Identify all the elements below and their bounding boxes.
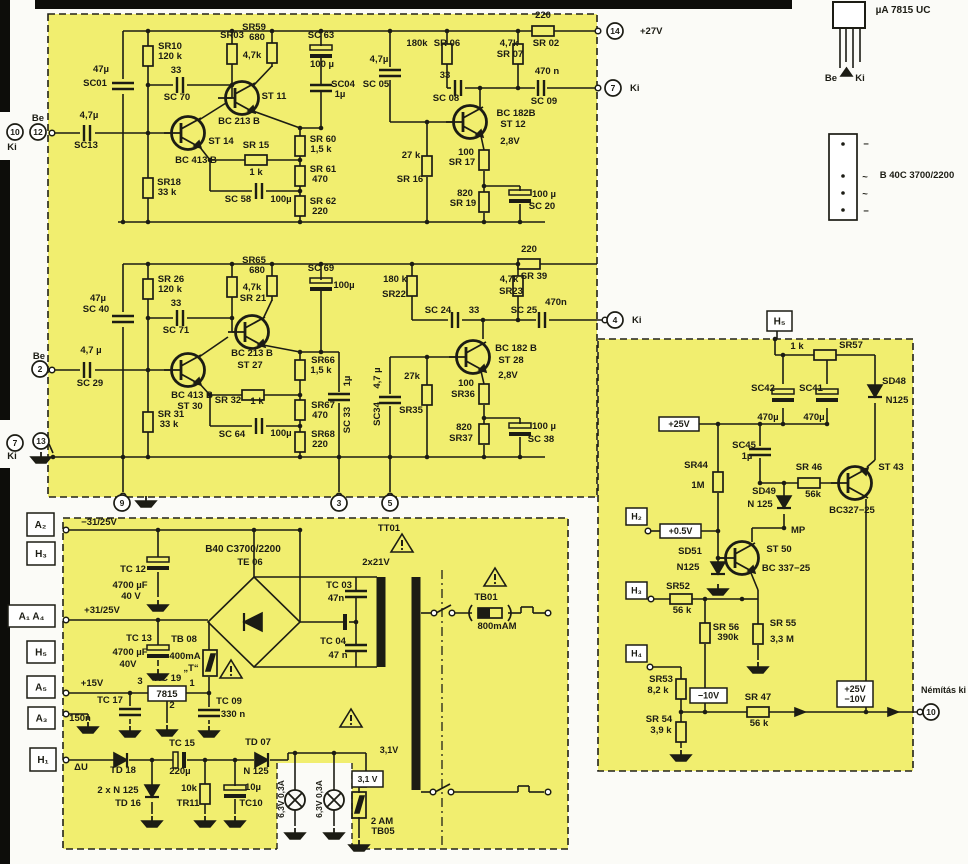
component-label: 100 µ [532, 421, 556, 432]
junction-dot [716, 556, 721, 561]
junction-dot [703, 710, 708, 715]
junction-dot [825, 422, 830, 427]
component-label: SC 70 [164, 92, 190, 103]
terminal-7: 7 [7, 435, 23, 451]
junction-dot [298, 126, 303, 131]
component-label: SC 08 [433, 93, 459, 104]
resistor-sr55 [753, 624, 763, 644]
junction-dot [121, 220, 126, 225]
junction-dot [146, 220, 151, 225]
component-label: 220 [312, 206, 328, 217]
resistor-sr67 [295, 400, 305, 420]
resistor-tr11 [200, 784, 210, 804]
component-label: SR57 [839, 340, 863, 351]
component-label: SR22 [382, 289, 406, 300]
component-label: SC 64 [219, 429, 246, 440]
component-label: N 125 [747, 499, 773, 510]
terminal-number: 13 [36, 436, 46, 446]
component-label: 4,7k [500, 274, 519, 285]
open-terminal-dot [430, 789, 436, 795]
component-label: ST 12 [500, 119, 525, 130]
junction-dot [230, 83, 235, 88]
junction-dot [146, 262, 151, 267]
component-label: SC45 [732, 440, 756, 451]
component-label: SC42 [751, 383, 775, 394]
resistor-sr02 [532, 26, 554, 36]
junction-dot [146, 83, 151, 88]
junction-dot [230, 262, 235, 267]
component-label: Be [32, 113, 44, 124]
resistor-sr26 [143, 279, 153, 299]
b40c-package [829, 134, 857, 220]
resistor-sr15 [245, 155, 267, 165]
component-label: „T“ [183, 663, 199, 674]
box-label: A₁ A₄ [19, 612, 45, 623]
component-label: SC 69 [308, 263, 334, 274]
box-label: −10V [844, 694, 865, 704]
component-label: BC 413 B [175, 155, 217, 166]
label-box: A₃ [28, 707, 55, 729]
resistor-sr56 [700, 623, 710, 643]
resistor-sr10 [143, 46, 153, 66]
component-label: ST 14 [208, 136, 234, 147]
label-box: H₁ [30, 748, 56, 771]
resistor-sr53 [676, 679, 686, 699]
resistor-sr57 [814, 350, 836, 360]
component-label: ST 43 [878, 462, 903, 473]
component-label: 390k [717, 632, 739, 643]
cap-sc69 [310, 287, 332, 291]
component-label: 10k [181, 783, 198, 794]
b40c-package [841, 174, 845, 178]
resistor-sr31 [143, 412, 153, 432]
component-label: SR 47 [745, 692, 771, 703]
component-label: 4,7µ [80, 110, 99, 121]
component-label: 4700 µF [112, 647, 147, 658]
component-label: 100 [458, 378, 474, 389]
component-label: 1,5 k [310, 144, 332, 155]
component-label: 33 [440, 70, 451, 81]
component-label: 220 [521, 244, 537, 255]
component-label: 680 [249, 32, 265, 43]
component-label: N125 [677, 562, 700, 573]
resistor-sr46 [798, 478, 820, 488]
component-label: 33 [469, 305, 480, 316]
junction-dot [203, 758, 208, 763]
junction-dot [482, 184, 487, 189]
component-label: SC 25 [511, 305, 538, 316]
component-label: TB05 [371, 826, 395, 837]
component-label: SR 46 [796, 462, 822, 473]
component-label: 2 [169, 700, 174, 711]
component-label: 1 k [250, 396, 264, 407]
component-label: 33 k [160, 419, 179, 430]
junction-dot [758, 481, 763, 486]
resistor-sr18 [143, 178, 153, 198]
junction-dot [516, 262, 521, 267]
resistor-sr46 [798, 478, 820, 488]
terminal-number: 14 [610, 26, 620, 36]
junction-dot [425, 220, 430, 225]
resistor-sr35 [422, 385, 432, 405]
component-label: Ki [7, 142, 17, 153]
component-label: ST 50 [766, 544, 791, 555]
junction-dot [679, 710, 684, 715]
label-box: H₅ [27, 641, 55, 663]
junction-dot [298, 393, 303, 398]
junction-dot [482, 220, 487, 225]
component-label: TC 09 [216, 696, 242, 707]
component-label: BC 413 B [171, 390, 213, 401]
component-label: 56k [805, 489, 822, 500]
component-label: 180 k [383, 274, 407, 285]
component-label: Be [825, 73, 837, 84]
open-terminal-dot [917, 709, 923, 715]
component-label: 4,7 µ [372, 367, 383, 388]
open-terminal-dot [448, 789, 454, 795]
top-edge-bar [35, 0, 792, 9]
resistor-sr16 [422, 156, 432, 176]
terminal-number: 10 [926, 707, 936, 717]
component-label: 33 k [158, 187, 177, 198]
junction-dot [146, 316, 151, 321]
component-label: 470 [312, 174, 328, 185]
label-box: +0.5V [660, 524, 701, 538]
junction-dot [298, 528, 303, 533]
junction-dot [156, 618, 161, 623]
component-label: BC 213 B [218, 116, 260, 127]
component-label: N 125 [243, 766, 269, 777]
resistor-sr60 [295, 136, 305, 156]
terminal-number: 5 [388, 498, 393, 508]
junction-dot [703, 597, 708, 602]
box-label: +25V [844, 684, 865, 694]
component-label: 470 [312, 410, 328, 421]
box-label: 3,1 V [358, 774, 378, 784]
resistor-sr16 [422, 156, 432, 176]
component-label: 470n [545, 297, 567, 308]
terminal-5: 5 [382, 495, 398, 511]
resistor-sr17 [479, 150, 489, 170]
component-label: 3,9 k [650, 725, 672, 736]
resistor-sr66 [295, 360, 305, 380]
resistor-sr03 [227, 44, 237, 64]
component-label: 47n [328, 593, 345, 604]
component-label: Ki [632, 315, 642, 326]
amplifier-block [48, 14, 597, 497]
component-label: SR 19 [450, 198, 476, 209]
junction-dot [716, 422, 721, 427]
component-label: 3 [137, 676, 142, 687]
resistor-sr65 [267, 276, 277, 296]
label-box: A₂ [27, 513, 54, 536]
component-label: SC41 [799, 383, 823, 394]
component-label: 1,5 k [310, 365, 332, 376]
junction-dot [51, 455, 56, 460]
component-label: 4700 µF [112, 580, 147, 591]
component-label: SR23 [499, 286, 523, 297]
component-label: TB 08 [171, 634, 197, 645]
terminal-9: 9 [114, 495, 130, 511]
label-box: 3,1 V [352, 771, 383, 787]
component-label: 1µ [742, 451, 753, 462]
junction-dot [298, 189, 303, 194]
component-label: 180k [406, 38, 428, 49]
component-label: TC 03 [326, 580, 352, 591]
junction-dot [298, 158, 303, 163]
resistor-sr67 [295, 400, 305, 420]
junction-dot [388, 455, 393, 460]
component-label: 6,3V 0,3A [314, 780, 324, 818]
component-label: 1 k [790, 341, 804, 352]
component-label: TC 12 [120, 564, 146, 575]
junction-dot [298, 350, 303, 355]
component-label: 40V [120, 659, 138, 670]
junction-dot [482, 455, 487, 460]
label-box: H₃ [626, 582, 647, 599]
resistor-sr02 [532, 26, 554, 36]
component-label: 680 [249, 265, 265, 276]
cap-sc41 [816, 398, 838, 402]
component-label: 8,2 k [647, 685, 669, 696]
component-label: 1M [691, 480, 704, 491]
junction-dot [425, 120, 430, 125]
component-label: SD49 [752, 486, 776, 497]
label-box: −10V [690, 688, 727, 703]
label-box: H₅ [767, 311, 792, 331]
label-box: +25V [659, 417, 699, 431]
component-label: SR 17 [449, 157, 475, 168]
component-label: SR 54 [646, 714, 673, 725]
component-label: TD 18 [110, 765, 136, 776]
resistor-sr61 [295, 166, 305, 186]
box-label: H₅ [35, 648, 47, 659]
resistor-sr68 [295, 432, 305, 452]
junction-dot [332, 751, 337, 756]
component-label: TB01 [474, 592, 498, 603]
terminal-14: 14 [607, 23, 623, 39]
component-label: ST 27 [237, 360, 262, 371]
component-label: 27 k [402, 150, 421, 161]
junction-dot [516, 29, 521, 34]
component-label: 4,7k [243, 50, 262, 61]
component-label: SC13 [74, 140, 98, 151]
center-tap [343, 614, 347, 630]
resistor-sr37 [479, 424, 489, 444]
warning-icon [401, 548, 403, 550]
component-label: ST 28 [498, 355, 523, 366]
box-label: H₁ [37, 755, 48, 766]
component-label: BC 337−25 [762, 563, 811, 574]
component-label: +31/25V [84, 605, 120, 616]
component-label: Be [33, 351, 45, 362]
component-label: Ki [630, 83, 640, 94]
component-label: TC 04 [320, 636, 347, 647]
junction-dot [864, 710, 869, 715]
label-box: H₄ [626, 645, 647, 662]
component-label: 470µ [757, 412, 778, 423]
junction-dot [518, 220, 523, 225]
center-tap [343, 614, 347, 630]
component-label: BC 213 B [231, 348, 273, 359]
component-label: +15V [81, 678, 104, 689]
component-label: 33 [171, 298, 182, 309]
junction-dot [128, 691, 133, 696]
component-label: +27V [640, 26, 663, 37]
junction-dot [518, 455, 523, 460]
resistor-sr47 [747, 707, 769, 717]
junction-dot [482, 416, 487, 421]
component-label: 400mA [169, 651, 200, 662]
component-label: 56 k [673, 605, 692, 616]
terminal-3: 3 [331, 495, 347, 511]
terminal-4: 4 [607, 312, 623, 328]
resistor-sr55 [753, 624, 763, 644]
component-label: 3,3 M [770, 634, 794, 645]
junction-dot [293, 751, 298, 756]
open-terminal-dot [545, 789, 551, 795]
resistor-tr11 [200, 784, 210, 804]
cap-sc63 [310, 54, 332, 58]
ic-7815-package [833, 2, 865, 28]
resistor-sr19 [479, 192, 489, 212]
component-label: SR 21 [240, 293, 267, 304]
resistor-sr65 [267, 276, 277, 296]
box-label: A₃ [36, 714, 48, 725]
open-terminal-dot [595, 85, 601, 91]
open-terminal-dot [63, 527, 69, 533]
junction-dot [270, 262, 275, 267]
component-label: SC 05 [363, 79, 390, 90]
terminal-number: 4 [613, 315, 618, 325]
component-label: SC 38 [528, 434, 554, 445]
resistor-sr44 [713, 472, 723, 492]
component-label: SR 02 [533, 38, 559, 49]
resistor-sr66 [295, 360, 305, 380]
resistor-sr52 [670, 594, 692, 604]
open-terminal-dot [63, 711, 69, 717]
terminal-13: 13 [33, 433, 49, 449]
cap-tc12 [147, 566, 169, 570]
box-label: H₅ [774, 317, 786, 328]
component-label: BC 182 B [495, 343, 537, 354]
junction-dot [298, 220, 303, 225]
component-label: 220 [535, 10, 551, 21]
component-label: 2,8V [500, 136, 520, 147]
resistor-sr35 [422, 385, 432, 405]
resistor-sr19 [479, 192, 489, 212]
component-label: 4,7µ [370, 54, 389, 65]
terminal-number: 12 [33, 127, 43, 137]
resistor-sr26 [143, 279, 153, 299]
component-label: SR52 [666, 581, 690, 592]
label-box: H₃ [27, 542, 55, 565]
box-label: 7815 [156, 689, 178, 700]
component-label: SD48 [882, 376, 906, 387]
component-label: 3,1V [380, 745, 399, 755]
component-label: 27k [404, 371, 421, 382]
resistor-sr62 [295, 196, 305, 216]
component-label: TIC 19 [153, 673, 182, 684]
component-label: SR53 [649, 674, 673, 685]
component-label: SC 58 [225, 194, 251, 205]
open-terminal-dot [449, 610, 455, 616]
component-label: MP [791, 525, 806, 536]
resistor-sr62 [295, 196, 305, 216]
component-label: SR 07 [497, 49, 523, 60]
cap-sc42 [772, 398, 794, 402]
component-label: SR 55 [770, 618, 797, 629]
component-label: SC 09 [531, 96, 557, 107]
junction-dot [740, 597, 745, 602]
component-label: SR 16 [397, 174, 423, 185]
component-label: 220µ [169, 766, 190, 777]
component-label: SR 32 [215, 395, 241, 406]
junction-dot [425, 355, 430, 360]
component-label: 1 [189, 678, 195, 689]
terminal-2: 2 [32, 361, 48, 377]
component-label: 470µ [803, 412, 824, 423]
component-label: SC 71 [163, 325, 190, 336]
fuse-tb01 [478, 608, 490, 618]
component-label: SR03 [220, 30, 244, 41]
component-label: 330 n [221, 709, 245, 720]
resistor-sr36 [479, 384, 489, 404]
open-terminal-dot [647, 664, 653, 670]
junction-dot [298, 455, 303, 460]
component-label: N125 [886, 395, 909, 406]
junction-dot [319, 126, 324, 131]
component-label: 150n [69, 713, 91, 724]
junction-dot [773, 337, 778, 342]
component-label: SR44 [684, 460, 708, 471]
component-label: 120 k [158, 51, 182, 62]
warning-icon [350, 723, 352, 725]
component-label: 1µ [342, 376, 353, 387]
component-label: SR 39 [521, 271, 547, 282]
junction-dot [354, 620, 359, 625]
box-label: A₂ [35, 520, 47, 531]
junction-dot [445, 29, 450, 34]
junction-dot [146, 368, 151, 373]
junction-dot [410, 262, 415, 267]
resistor-sr57 [814, 350, 836, 360]
component-label: 56 k [750, 718, 769, 729]
component-label: SC 20 [529, 201, 555, 212]
resistor-sr68 [295, 432, 305, 452]
junction-dot [781, 422, 786, 427]
component-label: Ki [855, 73, 865, 84]
box-label: H₃ [35, 549, 47, 560]
component-label: 220 [312, 439, 328, 450]
resistor-sr60 [295, 136, 305, 156]
component-label: 2,8V [498, 370, 518, 381]
warning-icon [494, 582, 496, 584]
terminal-12: 12 [30, 124, 46, 140]
open-terminal-dot [63, 757, 69, 763]
open-terminal-dot [645, 528, 651, 534]
component-label: SC 40 [83, 304, 109, 315]
junction-dot [298, 424, 303, 429]
component-label: 47µ [90, 293, 106, 304]
component-label: BC327−25 [829, 505, 875, 516]
component-label: ST 11 [262, 91, 288, 102]
component-label: µA 7815 UC [876, 5, 931, 16]
resistor-sr53 [676, 679, 686, 699]
junction-dot [425, 455, 430, 460]
component-label: 100µ [270, 194, 291, 205]
box-label: H₃ [631, 586, 642, 596]
